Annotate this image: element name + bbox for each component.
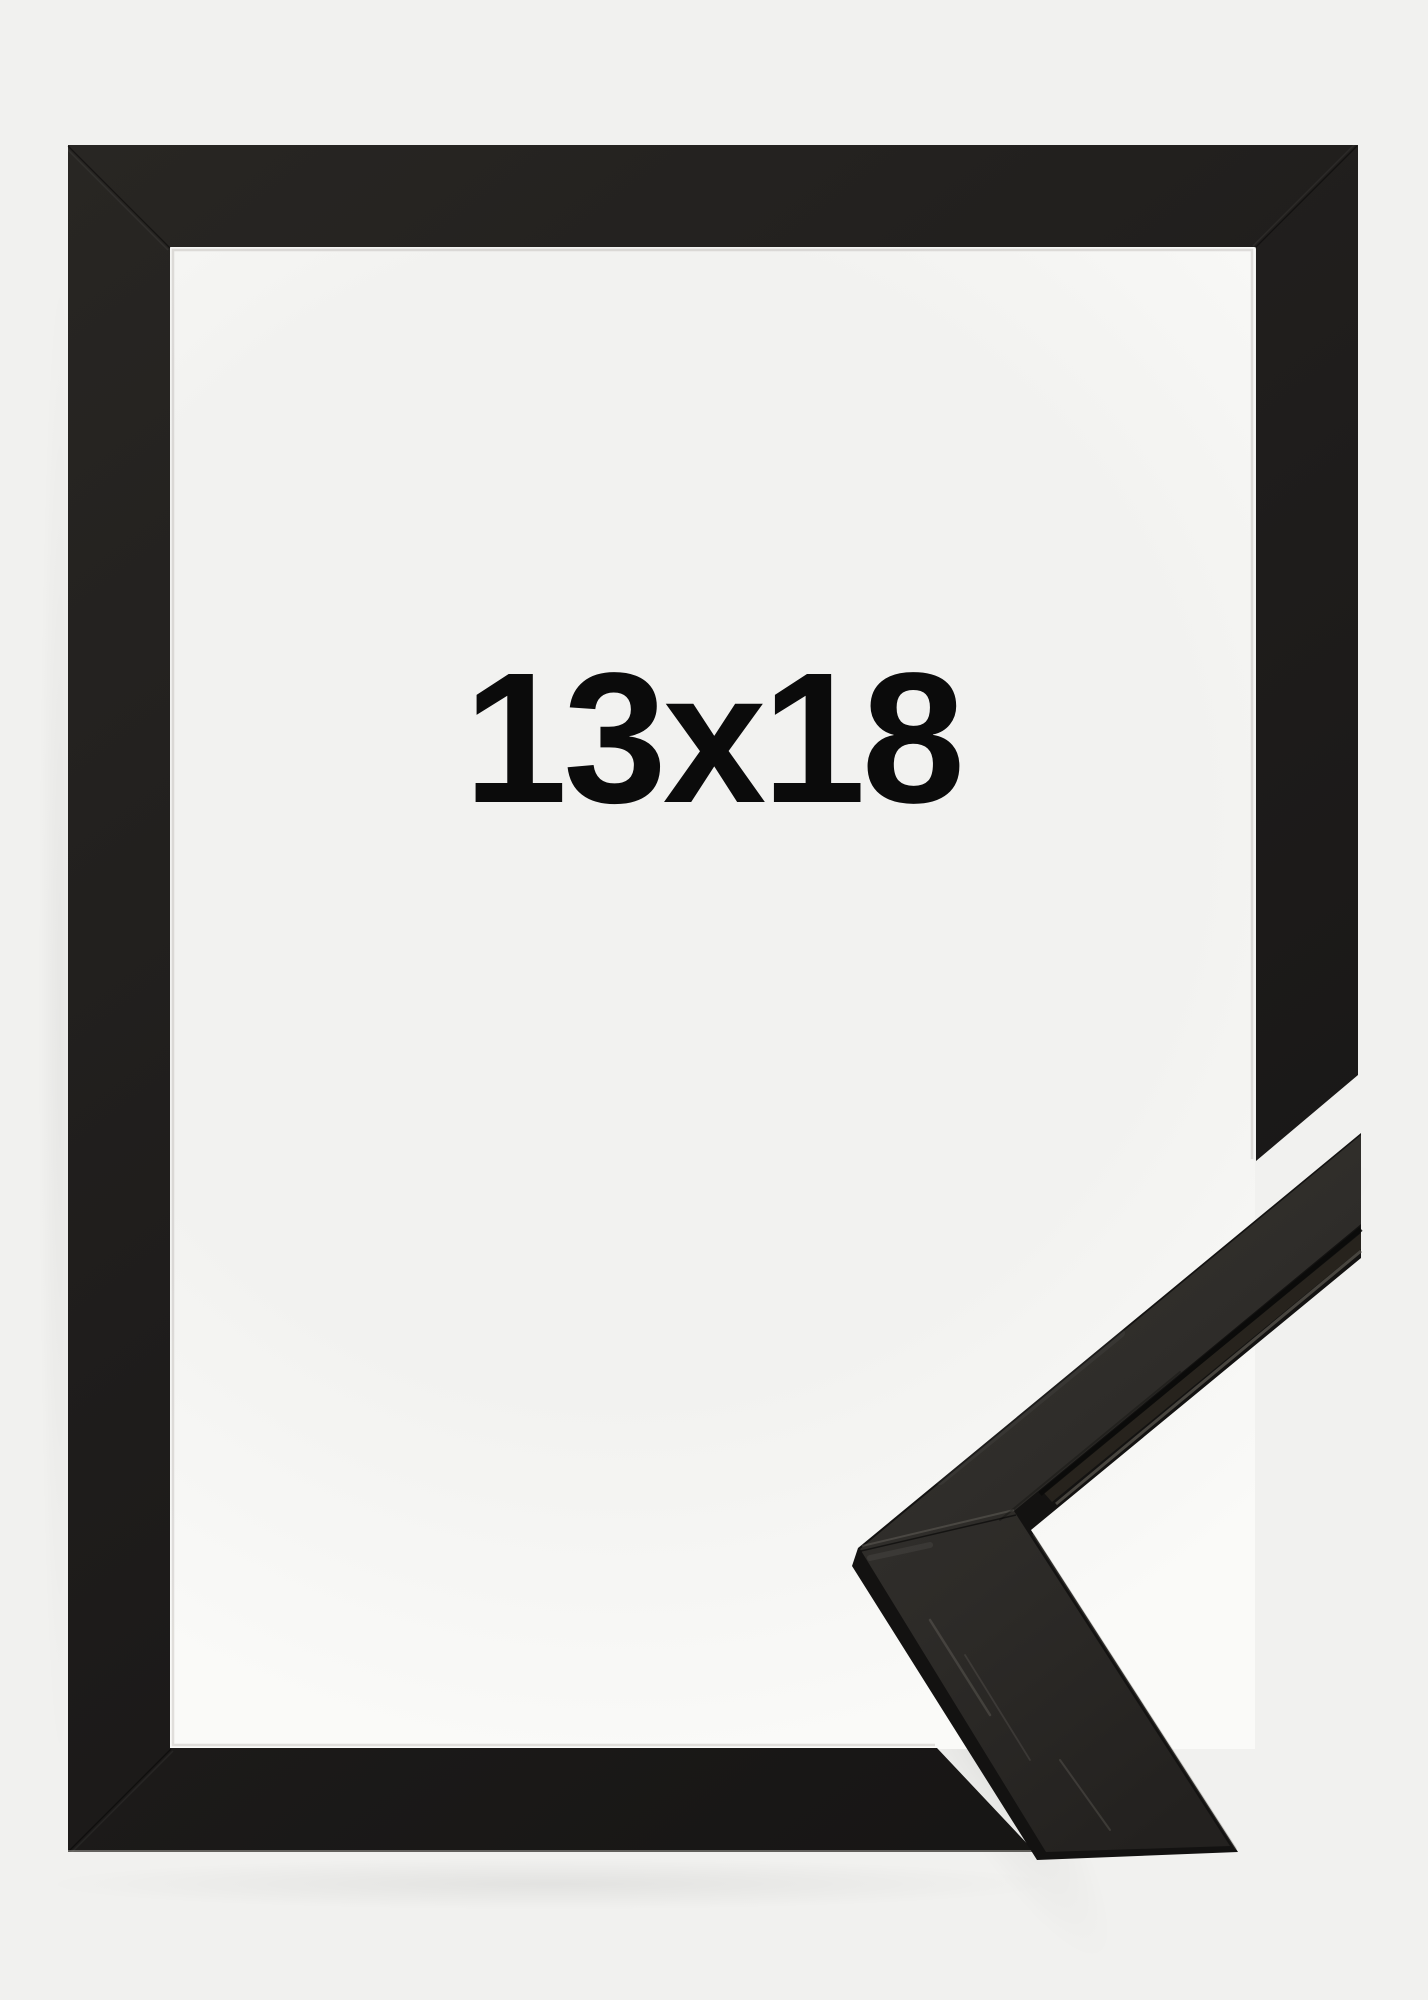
product-image: 13x18 [0,0,1428,2000]
frame-scene [0,0,1428,2000]
frame-opening [170,247,1255,1749]
frame-bottom-shadow [40,1858,1060,1910]
size-label: 13x18 [170,646,1255,832]
